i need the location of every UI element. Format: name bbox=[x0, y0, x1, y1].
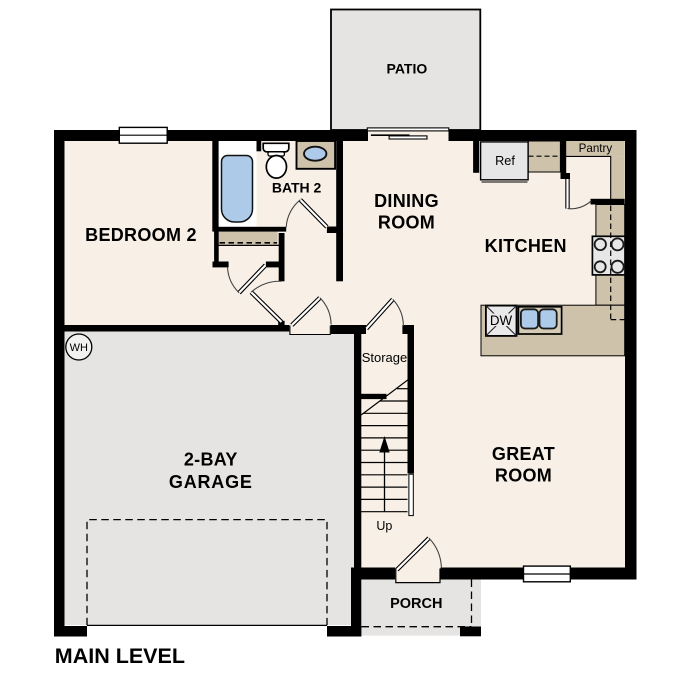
svg-text:MAIN LEVEL: MAIN LEVEL bbox=[55, 644, 185, 668]
svg-text:Up: Up bbox=[376, 519, 392, 533]
svg-text:Ref: Ref bbox=[495, 154, 515, 168]
svg-text:DW: DW bbox=[490, 313, 513, 328]
svg-text:GARAGE: GARAGE bbox=[169, 472, 253, 492]
svg-text:ROOM: ROOM bbox=[378, 213, 435, 233]
svg-text:Pantry: Pantry bbox=[579, 142, 613, 155]
svg-text:ROOM: ROOM bbox=[495, 466, 552, 486]
svg-text:Storage: Storage bbox=[362, 350, 408, 365]
svg-text:BATH 2: BATH 2 bbox=[272, 179, 322, 195]
svg-text:BEDROOM 2: BEDROOM 2 bbox=[85, 225, 197, 245]
svg-text:KITCHEN: KITCHEN bbox=[485, 236, 567, 256]
svg-text:GREAT: GREAT bbox=[492, 444, 555, 464]
svg-text:PATIO: PATIO bbox=[387, 60, 428, 76]
svg-text:PORCH: PORCH bbox=[390, 596, 442, 612]
svg-text:DINING: DINING bbox=[374, 191, 439, 211]
svg-text:2-BAY: 2-BAY bbox=[184, 450, 238, 470]
svg-text:WH: WH bbox=[70, 342, 88, 354]
